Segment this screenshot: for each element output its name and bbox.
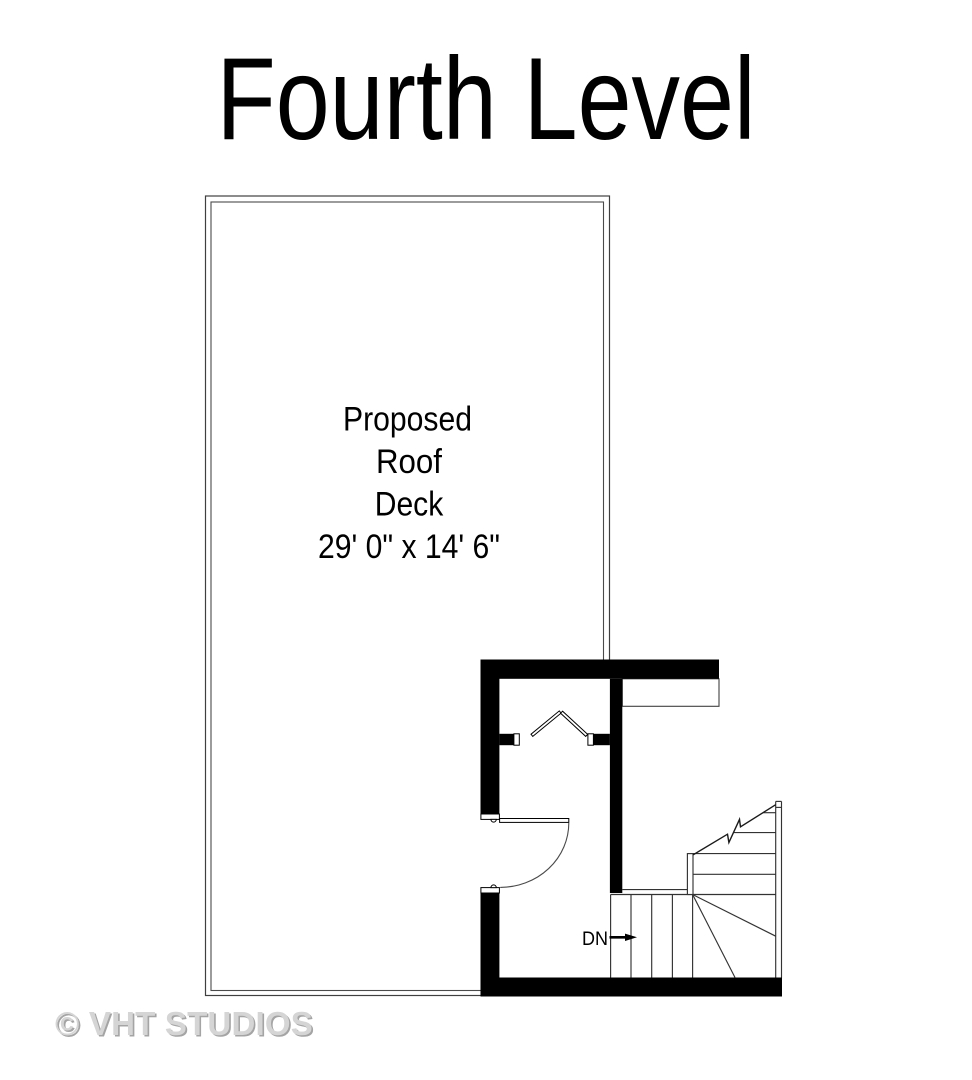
svg-text:Roof: Roof (376, 443, 442, 481)
svg-text:DN: DN (582, 929, 608, 950)
svg-text:Proposed: Proposed (343, 401, 472, 439)
svg-text:Deck: Deck (375, 486, 444, 524)
svg-text:29' 0" x 14' 6": 29' 0" x 14' 6" (318, 528, 500, 566)
svg-text:Fourth Level: Fourth Level (217, 33, 756, 164)
